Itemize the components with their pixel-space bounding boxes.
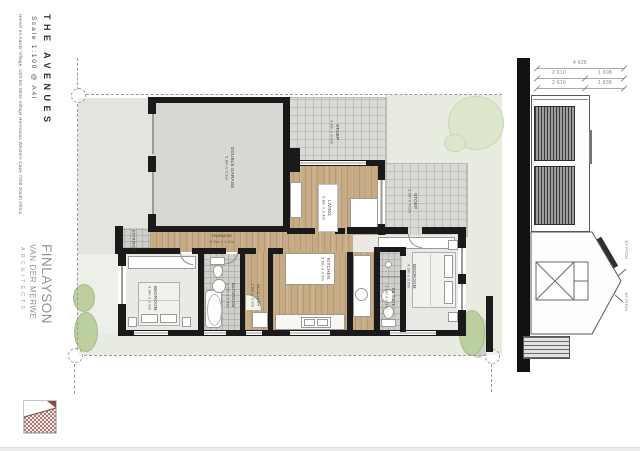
window <box>118 266 126 304</box>
boundary-marker <box>68 348 83 363</box>
dim-line <box>537 78 625 79</box>
boundary-line <box>74 364 75 394</box>
wall <box>378 160 385 180</box>
boundary-line <box>84 355 486 356</box>
garage-door-panel <box>534 166 575 225</box>
wall <box>347 252 353 332</box>
architects-logo-icon <box>23 400 57 434</box>
dim-upper-right: 1 608 <box>585 70 625 76</box>
boundary-line <box>86 94 502 95</box>
boundary-marker <box>71 88 86 103</box>
logo-text-architects: ARCHITECTS <box>19 247 25 312</box>
garage-door <box>152 170 154 214</box>
room-label-entrance: ENTRANCE <box>130 230 136 252</box>
room-label-ensuite: EN-SUITE1.4m x 3.1m <box>384 278 395 316</box>
wall <box>458 227 466 336</box>
wall <box>198 252 204 332</box>
window <box>290 331 330 335</box>
dining-table <box>350 198 378 228</box>
screen-wall <box>486 296 493 352</box>
door <box>246 331 262 335</box>
wall <box>115 226 123 254</box>
toilet <box>381 319 396 327</box>
garage-door <box>152 112 154 154</box>
window <box>458 284 466 310</box>
tv-cabinet <box>290 182 302 218</box>
toilet <box>210 257 225 265</box>
lawn-bottom <box>78 334 492 355</box>
wall <box>118 248 180 254</box>
boundary-line <box>77 104 78 350</box>
nightstand <box>182 317 191 327</box>
nightstand <box>128 317 137 327</box>
nightstand <box>448 240 458 250</box>
boundary-line <box>491 364 492 392</box>
wall <box>374 252 380 332</box>
room-label-stoep-right: STOEP3.0m x 4.0m <box>407 178 418 224</box>
logo-text-vandermerwe: VAN DER MERWE <box>28 244 37 320</box>
project-address: Hemel en Aarde Village, Unit 5G Wine Vil… <box>18 14 23 214</box>
wall <box>148 156 156 172</box>
dim-upper-left: 2 610 <box>539 70 579 76</box>
scale-note: Scale 1:100 @ A4l <box>30 16 37 100</box>
nightstand <box>448 312 458 322</box>
page-edge <box>0 447 640 451</box>
wall <box>347 227 408 234</box>
room-label-bedroom2: BEDROOM4.3m x 3.6m <box>406 254 417 298</box>
pitch-note-lower: 30° PITCH <box>624 292 629 311</box>
dim-lower-right: 1 838 <box>585 80 625 86</box>
page-title: THE AVENUES <box>42 14 52 127</box>
garage-floor <box>152 100 285 228</box>
wall <box>148 97 156 114</box>
tree-canopy-small <box>444 134 466 152</box>
dim-total: 4 628 <box>545 60 615 66</box>
sink-bowl <box>317 319 328 326</box>
louvre-deck <box>523 336 570 359</box>
dim-tick <box>621 85 627 91</box>
dim-lower-left: 2 610 <box>539 80 579 86</box>
window <box>134 331 168 335</box>
fascia-line <box>533 99 588 100</box>
basin <box>212 279 226 293</box>
wall <box>148 97 287 103</box>
room-label-passage: PASSAGE6.9m x 1.0m <box>198 233 246 244</box>
stoep-right-floor <box>385 163 468 237</box>
room-label-living: LIVING3.8m x 3.4m <box>321 188 332 228</box>
blanket-line <box>139 300 179 301</box>
room-label-kitchen: KITCHEN3.9m x 4.9m <box>320 255 331 283</box>
room-label-bathroom: BATHROOM1.7m x 3.4m <box>225 278 236 312</box>
logo-text-finlayson: FINLAYSON <box>39 244 54 324</box>
pillow <box>160 314 177 323</box>
sink-bowl <box>304 319 315 326</box>
window <box>390 331 436 335</box>
room-label-garage: DOUBLE GARAGE5.8m x 5.9m <box>224 138 235 198</box>
window <box>204 331 226 335</box>
cooktop <box>355 288 368 301</box>
dim-line <box>537 88 625 89</box>
room-label-scullery: SCULLERY1.5m x 3.0m <box>250 274 261 316</box>
downpipe <box>589 130 592 164</box>
wall <box>268 252 273 332</box>
room-label-bedroom1: BEDROOM3.9m x 2.9m <box>147 274 158 322</box>
shower-head <box>385 261 392 268</box>
pillow <box>444 281 453 304</box>
bathtub-inner <box>207 294 222 326</box>
garage-door-panel <box>534 106 575 161</box>
boundary-line <box>77 58 78 90</box>
room-label-stoep-top: STOEP4.6m x 4.0m <box>329 106 340 158</box>
floor-plan-sheet: THE AVENUES Scale 1:100 @ A4l Hemel en A… <box>0 0 640 451</box>
wall <box>287 228 315 234</box>
sliding-door <box>378 180 385 224</box>
appliance-counter <box>353 255 371 317</box>
wall <box>240 252 245 332</box>
wall <box>148 226 290 232</box>
blanket-line <box>430 254 431 306</box>
pillow <box>444 255 453 278</box>
sliding-door <box>300 161 366 165</box>
pitch-note-upper: 30° PITCH <box>624 240 629 259</box>
window <box>458 248 466 274</box>
dim-line <box>537 68 625 69</box>
